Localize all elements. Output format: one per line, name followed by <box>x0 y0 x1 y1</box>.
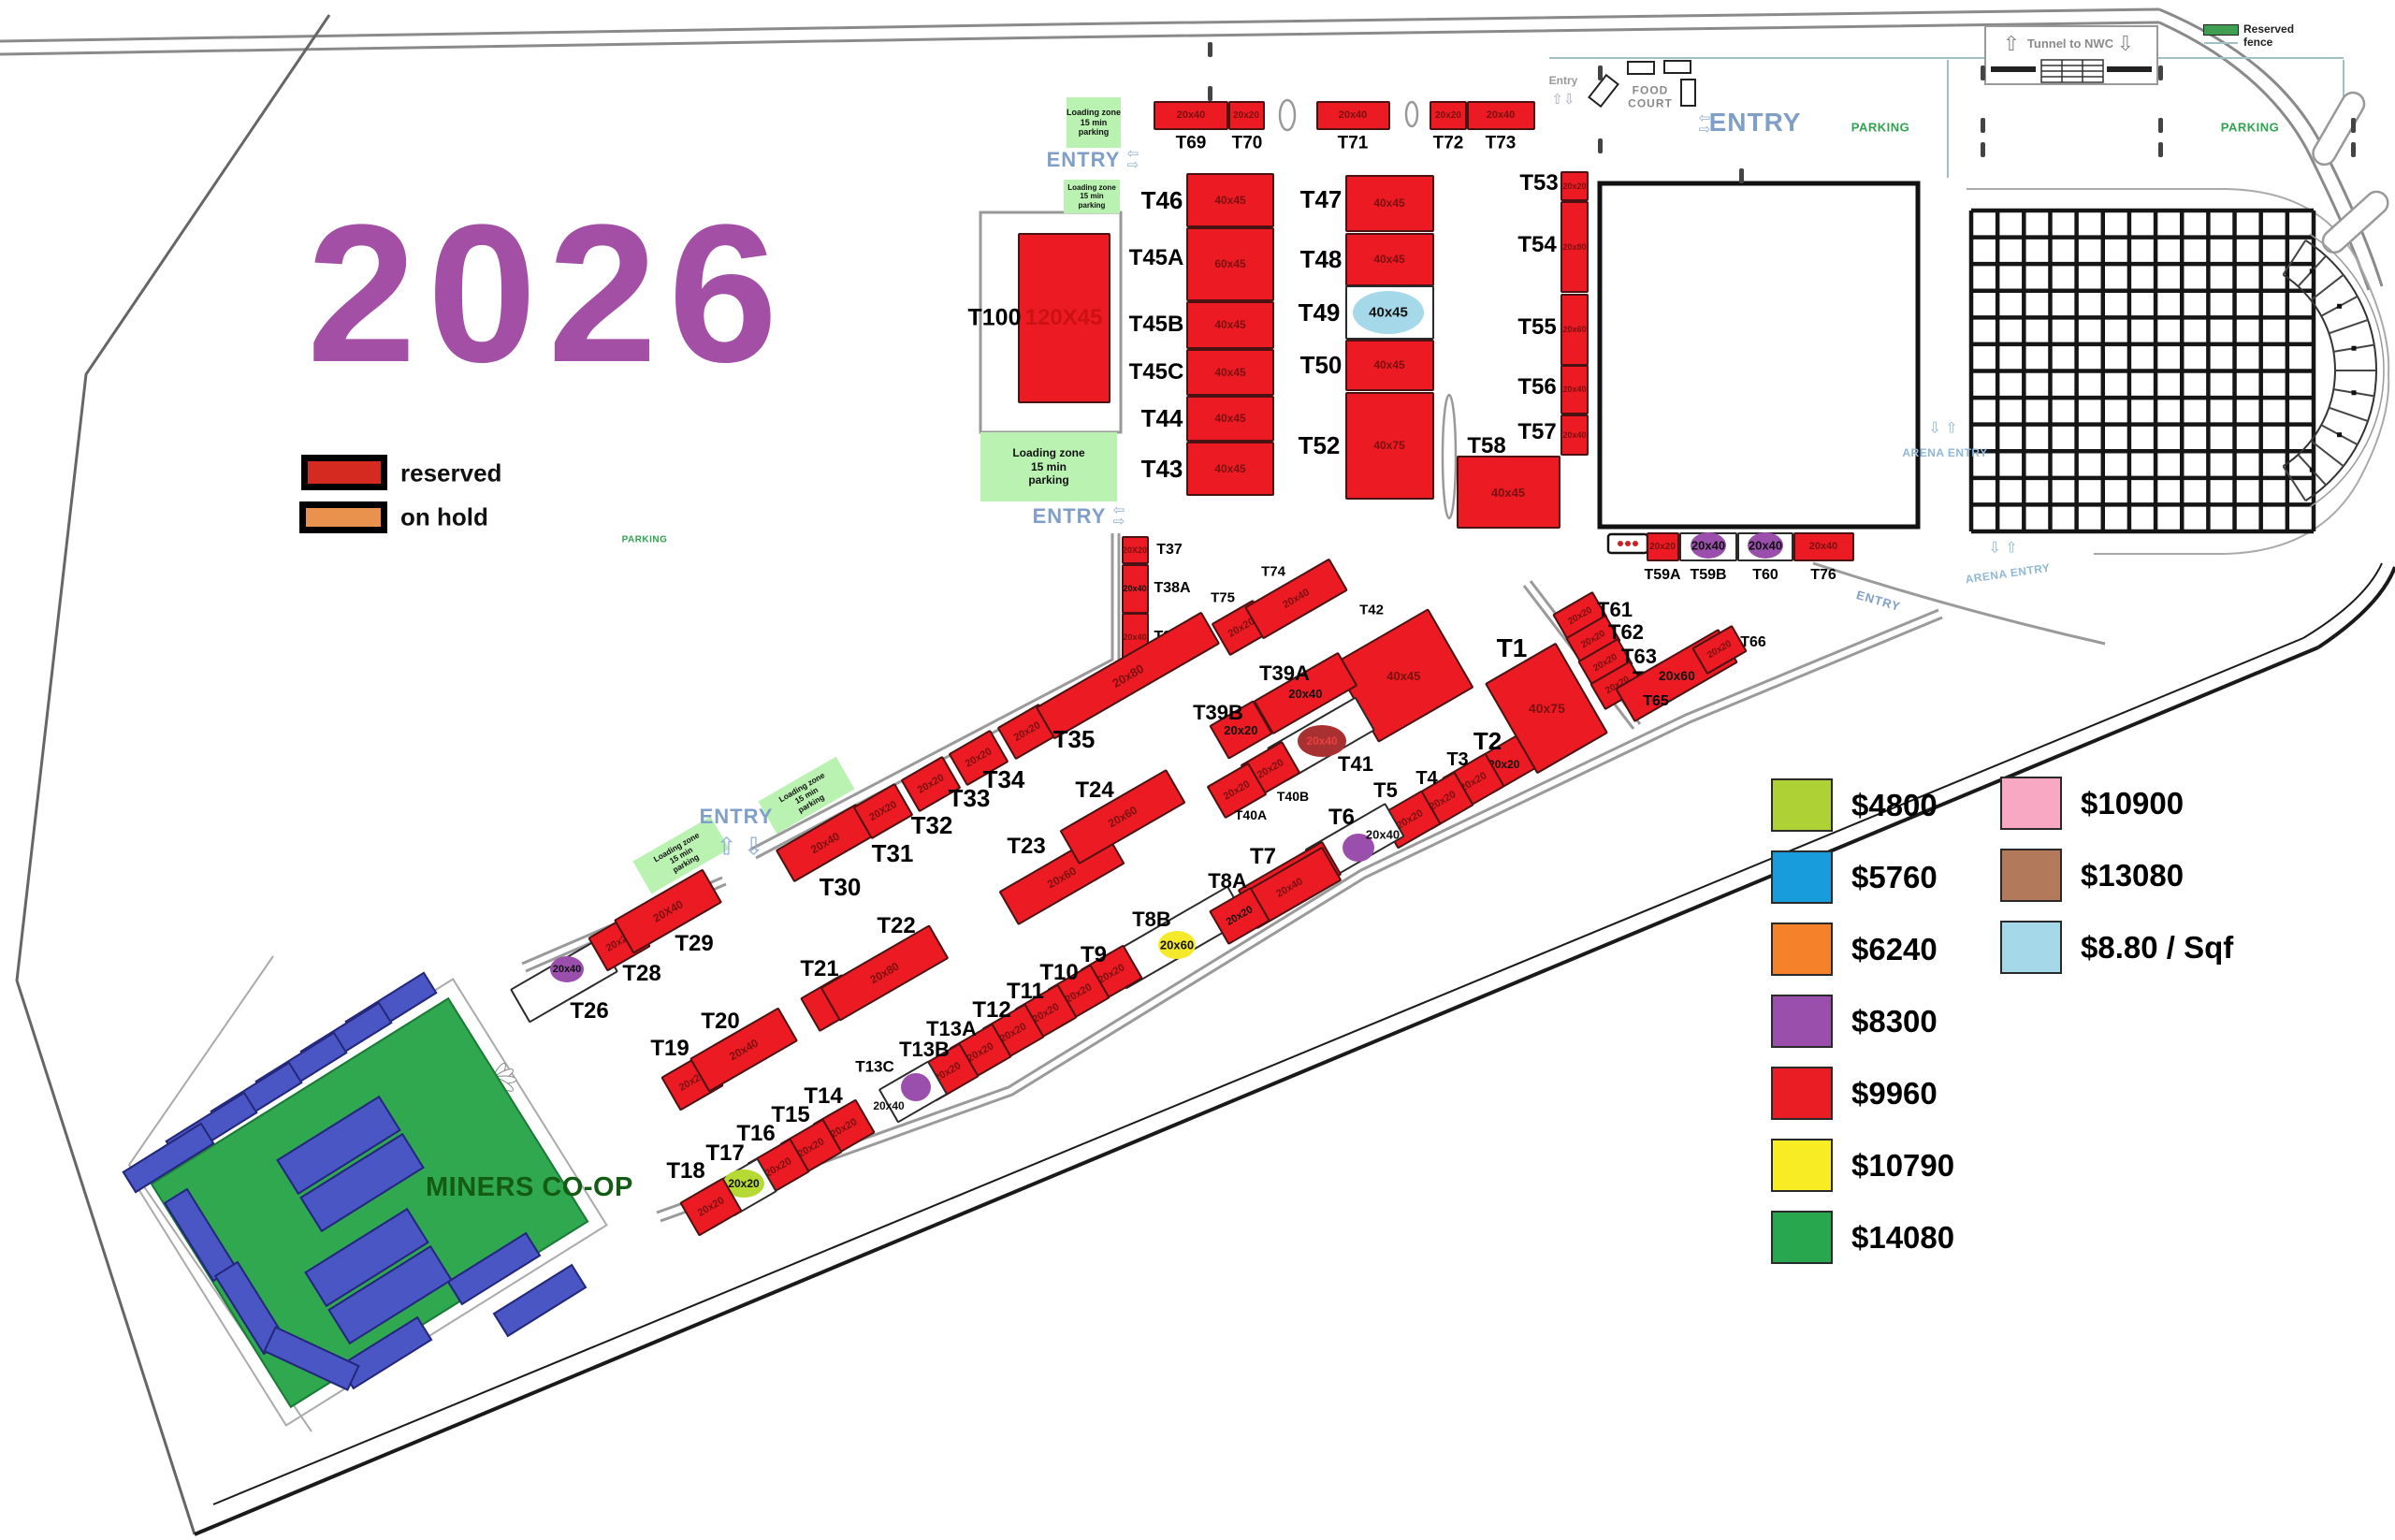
tunnel-label: Tunnel to NWC <box>2027 36 2113 51</box>
booth-label-T50: T50 <box>1300 353 1343 377</box>
parking-tick-icon <box>2351 142 2356 157</box>
booth-label-T4: T4 <box>1415 769 1437 788</box>
booth-label-T69: T69 <box>1176 135 1207 153</box>
booth-label-T57: T57 <box>1517 421 1556 443</box>
booth-label-T39B: T39B <box>1193 703 1243 723</box>
booth-dims: 20x80 <box>1562 242 1586 252</box>
price-swatch <box>1771 1067 1833 1120</box>
booth-label-T12: T12 <box>972 999 1010 1022</box>
booth-dims: 20x60 <box>1562 325 1586 334</box>
booth-dims: 40x45 <box>1373 253 1404 266</box>
price-legend-right: $10900$13080$8.80 / Sqf <box>2000 777 2233 993</box>
parking-tick-icon <box>1208 86 1212 101</box>
loading-zone-text: Loading zone 15 min parking <box>1067 108 1121 138</box>
miners-coop-label: MINERS CO-OP <box>426 1172 633 1203</box>
booth-label-T24: T24 <box>1075 779 1113 802</box>
booth-dims: 40x45 <box>1386 669 1420 683</box>
booth-label-T18: T18 <box>666 1160 704 1183</box>
booth-label-T6: T6 <box>1328 806 1355 829</box>
booth-label-T8A: T8A <box>1208 871 1247 892</box>
fence-label: fence <box>2243 36 2272 49</box>
booth-T57[interactable]: 20x40 <box>1560 414 1589 456</box>
status-marker-T13C <box>901 1073 931 1101</box>
booth-label-T42: T42 <box>1359 603 1384 617</box>
entry-label: ENTRY <box>1047 150 1121 170</box>
price-label: $10790 <box>1851 1148 1954 1184</box>
price-label: $4800 <box>1851 788 1938 823</box>
booth-label-T8B: T8B <box>1132 909 1171 930</box>
fence-swatch <box>2204 42 2238 44</box>
booth-dims: 20x40 <box>1809 541 1838 552</box>
reserved-label: reserved <box>400 459 501 488</box>
booth-dims: 40x75 <box>1373 439 1404 452</box>
price-label: $6240 <box>1851 932 1938 967</box>
onhold-label: on hold <box>400 503 488 532</box>
booth-label-T13A: T13A <box>926 1019 977 1039</box>
price-label: $9960 <box>1851 1076 1938 1111</box>
parking-tick-icon <box>1981 65 1985 80</box>
booth-label-T54: T54 <box>1517 234 1556 256</box>
booth-dims: 20x20 <box>1012 719 1042 744</box>
booth-T73[interactable]: 20x40 <box>1467 101 1535 130</box>
booth-T58[interactable]: 40x45 <box>1457 456 1560 529</box>
booth-dims: 20x40 <box>1339 109 1368 121</box>
booth-dims: 20x20 <box>1435 110 1461 121</box>
booth-dims: 20x40 <box>1274 876 1304 900</box>
entry-small-arrows-icon: ⇧⇩ <box>1551 94 1575 106</box>
booth-dims: 20x40 <box>1177 109 1206 121</box>
booth-dims: 20X40 <box>650 897 685 924</box>
booth-T48[interactable]: 40x45 <box>1345 233 1434 286</box>
booth-dims: 20x60 <box>1659 668 1695 683</box>
booth-dims: 20x20 <box>1562 182 1586 191</box>
booth-dims: 20x40 <box>1288 687 1322 701</box>
booth-label-T40B: T40B <box>1277 790 1309 803</box>
booth-T38A[interactable]: 20x40 <box>1122 564 1149 614</box>
booth-label-T60: T60 <box>1752 568 1778 583</box>
booth-label-T19: T19 <box>650 1038 689 1060</box>
loading-zone-text: Loading zone 15 min parking <box>1012 446 1084 487</box>
booth-label-T23: T23 <box>1007 835 1045 858</box>
booth-dims: 20x40 <box>1562 385 1586 394</box>
booth-T45C[interactable]: 40x45 <box>1186 349 1274 396</box>
booth-label-T28: T28 <box>622 963 660 985</box>
entry-label: ENTRY <box>700 806 774 827</box>
parking-tick-icon <box>1598 138 1603 153</box>
price-item-$10790: $10790 <box>1771 1139 1954 1192</box>
parking-tick-icon <box>2158 118 2163 133</box>
price-swatch <box>1771 778 1833 832</box>
arena-grid-line <box>2311 275 2344 300</box>
parking-tick-icon <box>1208 42 1212 57</box>
year-title: 2026 <box>307 217 789 370</box>
loading-zone: Loading zone 15 min parking <box>980 432 1117 501</box>
main-building-outline <box>1600 183 1918 527</box>
up-arrow-icon: ⇧ <box>2003 36 2020 52</box>
reserved-swatch <box>301 455 387 490</box>
booth-dims: 20x40 <box>1562 430 1586 440</box>
marker-dims-T8B: 20x60 <box>1160 938 1194 952</box>
booth-label-T59B: T59B <box>1690 568 1726 583</box>
parking-tick-icon <box>2158 142 2163 157</box>
booth-label-T55: T55 <box>1517 316 1556 339</box>
marker-dims-T59B: 20x40 <box>1691 539 1725 553</box>
parking-label: PARKING <box>2221 121 2279 135</box>
parking-tick-icon <box>1598 65 1603 80</box>
booth-dims: 20x20 <box>696 1195 726 1219</box>
parking-tick-icon <box>1739 168 1744 183</box>
booth-T45B[interactable]: 40x45 <box>1186 301 1274 349</box>
booth-label-T10: T10 <box>1039 962 1078 984</box>
price-legend-left: $4800$5760$6240$8300$9960$10790$14080 <box>1771 778 1954 1283</box>
booth-T100[interactable]: 120X45 <box>1018 233 1110 403</box>
price-label: $10900 <box>2081 786 2184 821</box>
food-table-icon <box>1628 62 1654 74</box>
entry-label: ENTRY <box>1709 109 1802 136</box>
parking-tick-icon <box>1981 118 1985 133</box>
booth-dims: 20x60 <box>1045 864 1079 892</box>
booth-dims: 40x45 <box>1373 358 1404 371</box>
bleacher-seat-dot <box>2337 304 2342 309</box>
booth-T59A[interactable]: 20x20 <box>1647 532 1679 561</box>
price-item-$9960: $9960 <box>1771 1067 1954 1120</box>
booth-dims: 20x40 <box>1281 587 1311 611</box>
entry-arrows-icon: ⇦⇨ <box>1699 113 1711 136</box>
booth-dims: 120X45 <box>1025 305 1103 331</box>
booth-label-T38A: T38A <box>1154 581 1190 596</box>
booth-label-T74: T74 <box>1261 565 1285 579</box>
booth-label-T34: T34 <box>983 767 1025 792</box>
loading-zone: Loading zone 15 min parking <box>1067 97 1121 148</box>
price-item-$8.80 / Sqf: $8.80 / Sqf <box>2000 921 2233 974</box>
price-item-$10900: $10900 <box>2000 777 2233 830</box>
entry-label: ENTRY <box>1033 506 1107 527</box>
booth-T44[interactable]: 40x45 <box>1186 396 1274 442</box>
booth-label-T32: T32 <box>911 813 953 837</box>
booth-dims: 20x20 <box>1256 757 1285 781</box>
arena-grid-line <box>2329 408 2368 421</box>
parking-tick-icon <box>2351 118 2356 133</box>
booth-label-T75: T75 <box>1211 591 1235 605</box>
booth-T69[interactable]: 20x40 <box>1154 101 1228 130</box>
booth-dims: 20x40 <box>808 830 842 857</box>
bleacher-seat-dot <box>2337 432 2342 437</box>
booth-dims: 20x20 <box>1225 904 1255 928</box>
booth-label-T5: T5 <box>1373 780 1398 801</box>
booth-label-T31: T31 <box>872 841 914 865</box>
bleacher-seat-dot <box>2310 269 2315 273</box>
booth-label-T45A: T45A <box>1129 247 1184 269</box>
parking-tick-icon <box>2158 65 2163 80</box>
booth-label-T17: T17 <box>705 1142 744 1165</box>
booth-T43[interactable]: 40x45 <box>1186 442 1274 496</box>
booth-dims: 40x75 <box>1529 701 1565 716</box>
booth-T71[interactable]: 20x40 <box>1316 101 1390 130</box>
booth-dims: 40x45 <box>1214 462 1245 475</box>
booth-dims: 20x40 <box>1123 632 1146 642</box>
booth-label-T45B: T45B <box>1129 313 1184 336</box>
parking-label: PARKING <box>1851 121 1909 135</box>
booth-label-T47: T47 <box>1300 187 1343 211</box>
booth-T72[interactable]: 20x20 <box>1430 101 1467 130</box>
booth-label-T22: T22 <box>877 915 915 937</box>
booth-dims: 40x45 <box>1214 318 1245 331</box>
booth-label-T59A: T59A <box>1644 568 1680 583</box>
booth-label-T71: T71 <box>1338 135 1369 153</box>
booth-label-T26: T26 <box>570 1000 608 1023</box>
price-swatch <box>2000 777 2062 830</box>
booth-label-T9: T9 <box>1081 944 1107 966</box>
booth-T56[interactable]: 20x40 <box>1560 365 1589 414</box>
price-swatch <box>2000 849 2062 902</box>
booth-label-T13C: T13C <box>855 1059 894 1075</box>
pillar-icon <box>1406 102 1417 126</box>
pillar-icon <box>1443 395 1456 518</box>
booth-label-T39A: T39A <box>1259 663 1310 684</box>
food-court-label: FOOD COURT <box>1628 84 1673 111</box>
booth-dims: 40x45 <box>1214 366 1245 379</box>
arena-entry-label: ARENA ENTRY <box>1902 446 1987 459</box>
loading-zone: Loading zone 15 min parking <box>1064 180 1120 213</box>
price-swatch <box>1771 1139 1833 1192</box>
price-swatch <box>1771 1211 1833 1264</box>
booth-dims: 20x80 <box>867 960 901 987</box>
booth-label-T44: T44 <box>1141 406 1183 430</box>
booth-dims: 20x40 <box>1487 109 1516 121</box>
booth-dims: 20X20 <box>1123 545 1147 555</box>
booth-label-T1: T1 <box>1497 635 1528 661</box>
price-item-$14080: $14080 <box>1771 1211 1954 1264</box>
booth-label-T3: T3 <box>1446 750 1468 769</box>
bleacher-seat-dot <box>2310 468 2315 472</box>
booth-T55[interactable]: 20x60 <box>1560 294 1589 366</box>
booth-label-T100: T100 <box>968 307 1022 330</box>
booth-dims: 20x20 <box>1224 723 1257 737</box>
price-swatch <box>1771 850 1833 904</box>
booth-label-T21: T21 <box>800 958 838 981</box>
food-table-icon <box>1681 80 1695 106</box>
booth-label-T73: T73 <box>1486 135 1517 153</box>
entry-arrows-icon: ⇦⇨ <box>1127 149 1139 171</box>
food-table-icon <box>1664 61 1691 73</box>
price-swatch <box>2000 921 2062 974</box>
marker-dims-T41: 20x40 <box>1306 734 1337 748</box>
booth-label-T20: T20 <box>701 1010 739 1033</box>
booth-dims: 20X20 <box>867 799 899 823</box>
booth-label-T45C: T45C <box>1129 361 1184 384</box>
entry-arrows-icon: ⇦⇨ <box>1113 505 1125 528</box>
booth-dims: 60x45 <box>1214 257 1245 270</box>
bleacher-seat-dot <box>2352 346 2357 351</box>
booth-label-T49: T49 <box>1299 300 1341 325</box>
marker-dims-T26: 20x40 <box>553 964 582 975</box>
booth-dims: 40x45 <box>1214 412 1245 425</box>
onhold-swatch <box>299 501 387 533</box>
booth-label-T72: T72 <box>1433 135 1464 153</box>
price-item-$13080: $13080 <box>2000 849 2233 902</box>
booth-label-T40A: T40A <box>1235 808 1267 821</box>
loading-zone-text: Loading zone 15 min parking <box>1067 183 1116 211</box>
marker-dims-T49: 40x45 <box>1369 305 1408 321</box>
booth-dims: 20x20 <box>1233 110 1259 121</box>
pillar-icon <box>1280 100 1295 130</box>
booth-dims: 40x45 <box>1491 486 1525 500</box>
price-swatch <box>1771 923 1833 976</box>
price-label: $14080 <box>1851 1220 1954 1256</box>
marker-dims-T13C: 20x40 <box>873 1099 904 1112</box>
price-item-$6240: $6240 <box>1771 923 1954 976</box>
booth-label-T7: T7 <box>1250 846 1276 868</box>
booth-dims: 20x40 <box>727 1037 761 1064</box>
booth-dims: 20x20 <box>916 772 946 796</box>
booth-label-T46: T46 <box>1141 188 1183 212</box>
booth-label-T30: T30 <box>820 875 862 899</box>
shuttle-icon <box>1608 534 1647 553</box>
booth-label-T41: T41 <box>1338 754 1373 775</box>
booth-dims: 20x40 <box>1123 584 1146 593</box>
parking-label: PARKING <box>622 535 668 545</box>
booth-T54[interactable]: 20x80 <box>1560 201 1589 293</box>
arena-entry-arrows-icon: ⇩ ⇧ <box>1928 424 1957 436</box>
down-arrow-icon: ⇩ <box>2117 36 2134 52</box>
reserved-fence-swatch <box>2203 24 2239 36</box>
island-shape <box>2309 89 2368 169</box>
booth-label-T48: T48 <box>1300 247 1343 271</box>
booth-dims: 20x60 <box>1106 804 1139 831</box>
parking-tick-icon <box>1981 142 1985 157</box>
booth-label-T29: T29 <box>675 933 713 955</box>
booth-T37[interactable]: 20X20 <box>1122 536 1149 564</box>
booth-T47[interactable]: 40x45 <box>1345 175 1434 232</box>
booth-dims: 20x20 <box>1649 542 1676 552</box>
booth-label-T70: T70 <box>1232 135 1263 153</box>
bleacher-seat-dot <box>2352 390 2357 395</box>
booth-T76[interactable]: 20x40 <box>1793 532 1854 561</box>
booth-label-T65: T65 <box>1643 694 1669 709</box>
booth-T46[interactable]: 40x45 <box>1186 173 1274 227</box>
marker-dims-T17: 20x20 <box>728 1177 759 1190</box>
booth-T70[interactable]: 20x20 <box>1228 101 1265 130</box>
booth-label-T2: T2 <box>1473 729 1502 753</box>
price-label: $8300 <box>1851 1004 1938 1039</box>
booth-T50[interactable]: 40x45 <box>1345 340 1434 391</box>
arena-grid-line <box>2329 320 2368 333</box>
booth-label-T43: T43 <box>1141 457 1183 481</box>
price-item-$5760: $5760 <box>1771 850 1954 904</box>
booth-dims: 20x20 <box>1706 638 1734 660</box>
price-label: $8.80 / Sqf <box>2081 930 2233 966</box>
booth-label-T35: T35 <box>1053 727 1096 751</box>
reserved-fence-label: Reserved <box>2243 22 2294 36</box>
booth-label-T37: T37 <box>1156 543 1183 558</box>
entry-arrows-icon: ⇧ ⇩ <box>717 837 764 857</box>
price-item-$8300: $8300 <box>1771 995 1954 1048</box>
marker-dims-T6: 20x40 <box>1366 828 1400 842</box>
booth-label-T52: T52 <box>1299 433 1341 458</box>
price-item-$4800: $4800 <box>1771 778 1954 832</box>
booth-label-T13B: T13B <box>899 1039 950 1060</box>
booth-T53[interactable]: 20x20 <box>1560 171 1589 201</box>
booth-label-T58: T58 <box>1467 435 1505 458</box>
booth-label-T76: T76 <box>1810 568 1836 583</box>
arena-grid-line <box>2311 441 2344 466</box>
booth-label-T56: T56 <box>1517 376 1556 399</box>
booth-label-T15: T15 <box>771 1104 809 1126</box>
booth-T45A[interactable]: 60x45 <box>1186 227 1274 301</box>
booth-label-T11: T11 <box>1007 981 1044 1003</box>
price-label: $5760 <box>1851 860 1938 895</box>
booth-label-T53: T53 <box>1519 172 1558 195</box>
booth-T52[interactable]: 40x75 <box>1345 392 1434 500</box>
food-table-icon <box>1589 75 1618 106</box>
marker-dims-T60: 20x40 <box>1749 539 1782 553</box>
entry-small-label: Entry <box>1549 74 1578 87</box>
booth-dims: 20x80 <box>1110 661 1146 690</box>
arena-entry-arrows-icon: ⇩ ⇧ <box>1988 544 2017 556</box>
price-label: $13080 <box>2081 858 2184 893</box>
booth-dims: 40x45 <box>1373 196 1404 210</box>
booth-dims: 20x20 <box>1222 778 1252 803</box>
booth-label-T66: T66 <box>1740 635 1766 650</box>
price-swatch <box>1771 995 1833 1048</box>
fence-line <box>1549 58 2344 178</box>
floorplan-canvas: 2026 reserved on hold $4800$5760$6240$83… <box>0 0 2395 1540</box>
booth-dims: 40x45 <box>1214 194 1245 207</box>
